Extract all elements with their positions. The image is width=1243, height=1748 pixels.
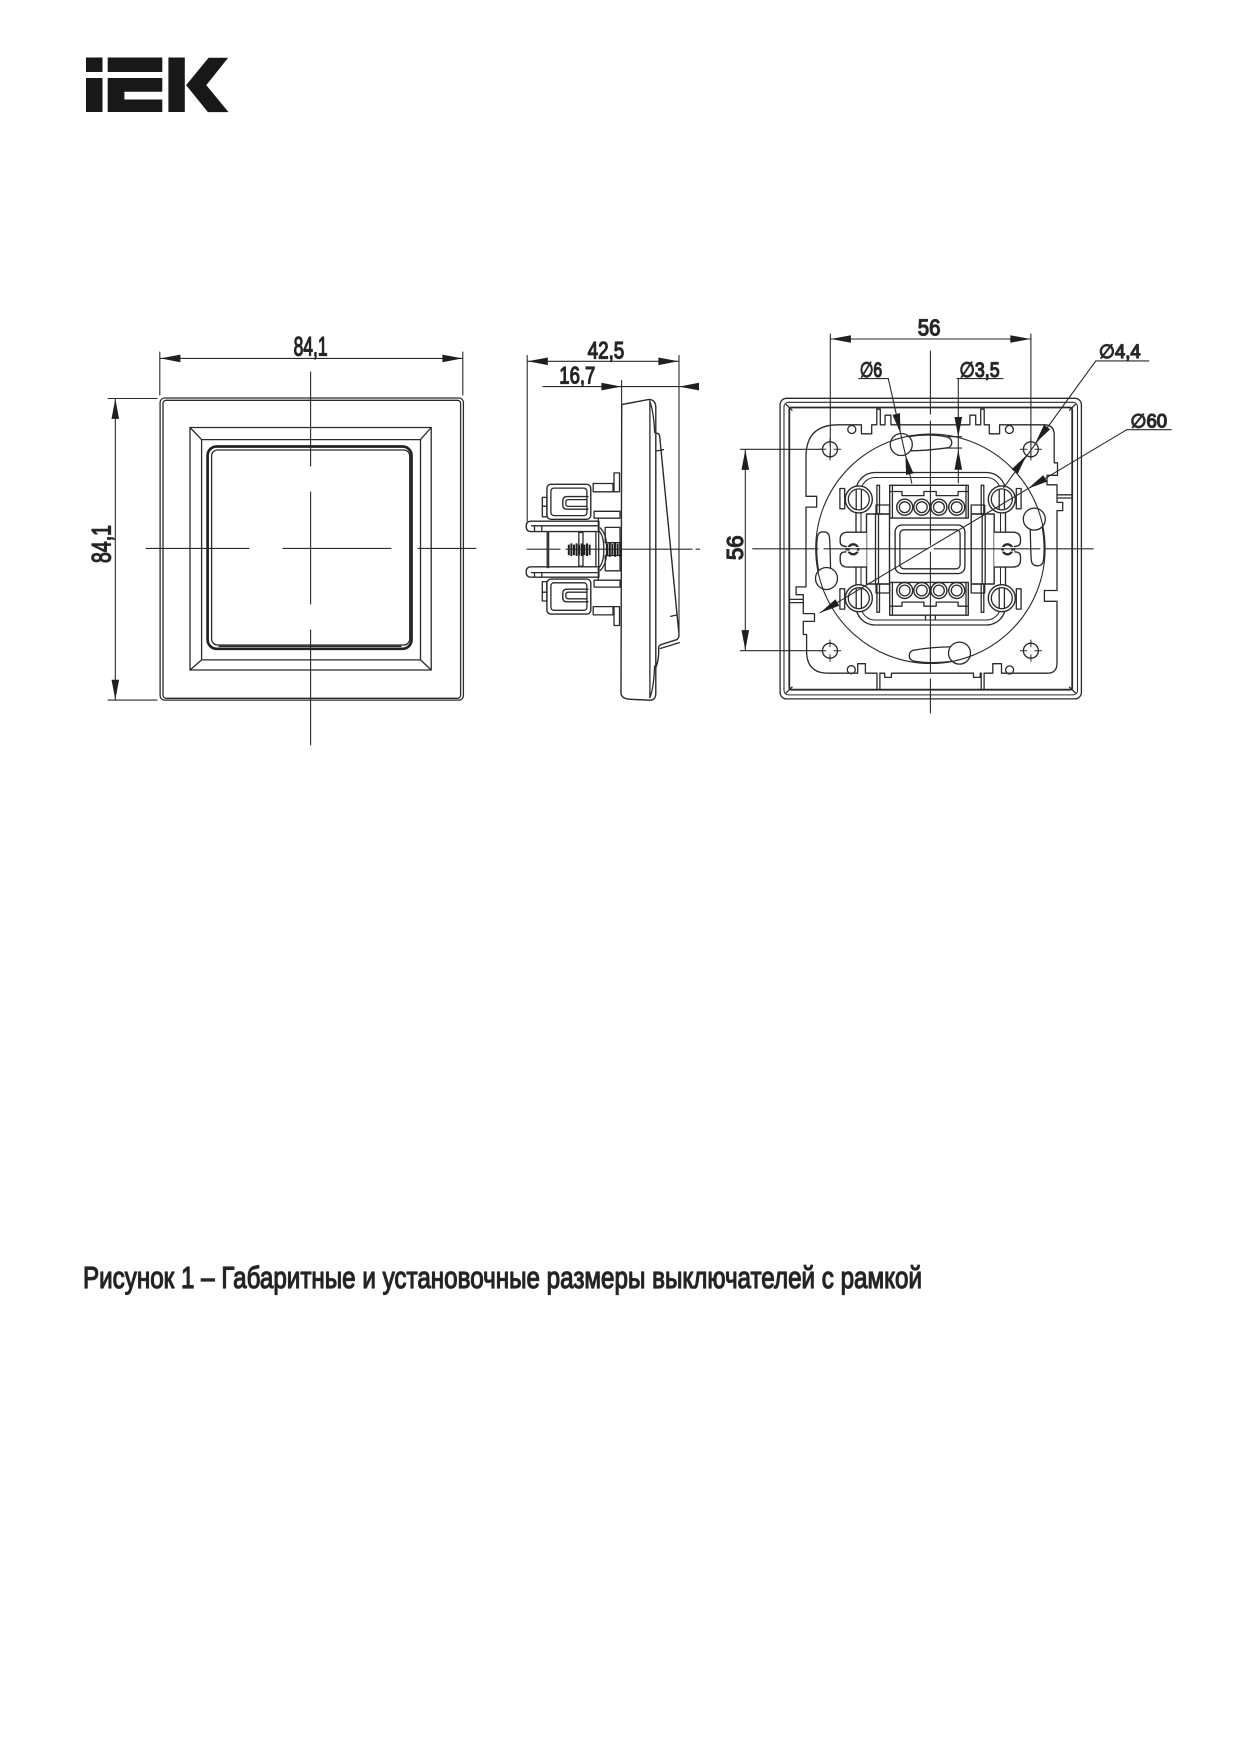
svg-text:84,1: 84,1	[294, 332, 328, 362]
svg-text:56: 56	[722, 535, 748, 560]
svg-text:42,5: 42,5	[588, 337, 625, 364]
svg-text:84,1: 84,1	[87, 525, 117, 563]
svg-text:16,7: 16,7	[559, 363, 595, 390]
svg-text:∅4,4: ∅4,4	[1099, 342, 1141, 363]
svg-text:Рисунок 1 – Габаритные и устан: Рисунок 1 – Габаритные и установочные ра…	[83, 1260, 922, 1295]
svg-text:56: 56	[918, 315, 941, 341]
